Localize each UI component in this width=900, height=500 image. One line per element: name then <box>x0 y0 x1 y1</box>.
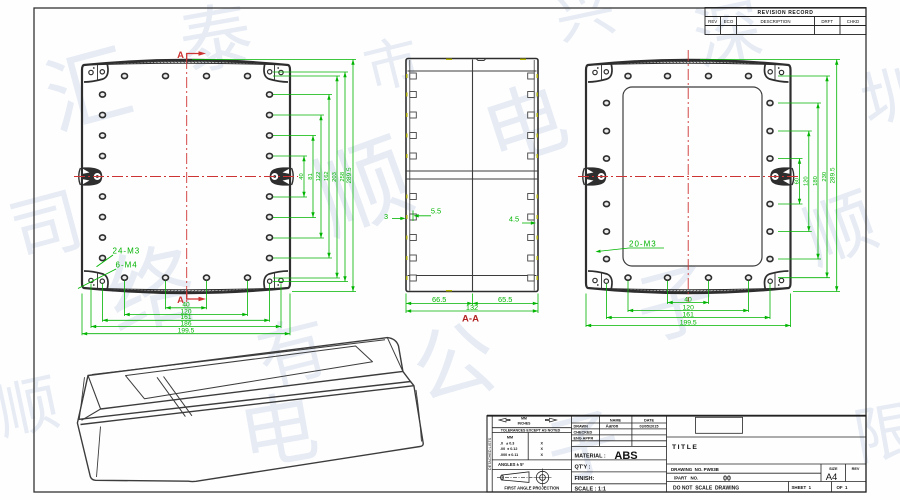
svg-text:60: 60 <box>794 178 800 184</box>
svg-text:.0 ± 0.3: .0 ± 0.3 <box>500 441 514 445</box>
svg-text:MM: MM <box>521 417 527 421</box>
svg-text:20-M3: 20-M3 <box>629 240 657 249</box>
svg-text:TITLE: TITLE <box>672 444 698 451</box>
svg-text:122: 122 <box>316 172 322 182</box>
svg-text:CHECKED: CHECKED <box>574 430 593 434</box>
svg-text:SIZE: SIZE <box>829 467 838 471</box>
svg-text:SHEET 1: SHEET 1 <box>792 485 812 490</box>
svg-text:REV: REV <box>852 467 860 471</box>
svg-text:TOLERANCES EXCEPT AS NOTED: TOLERANCES EXCEPT AS NOTED <box>501 428 561 432</box>
svg-text:OF 1: OF 1 <box>837 485 849 490</box>
svg-text:161: 161 <box>683 311 695 318</box>
svg-text:66.5: 66.5 <box>432 295 446 304</box>
svg-text:/PART NO.: /PART NO. <box>674 476 698 481</box>
svg-text:ABS: ABS <box>614 450 637 462</box>
svg-text:6-M4: 6-M4 <box>116 261 138 270</box>
svg-text:SCALE : 1:1: SCALE : 1:1 <box>575 487 606 493</box>
svg-text:Aaron: Aaron <box>606 423 619 428</box>
svg-text:REV: REV <box>708 19 717 24</box>
svg-text:ENG APPR: ENG APPR <box>574 436 594 440</box>
svg-text:4.5: 4.5 <box>509 215 519 224</box>
svg-text:81: 81 <box>308 173 314 179</box>
svg-text:.000 ± 0.11: .000 ± 0.11 <box>500 453 518 457</box>
svg-text:DRAWING NO. PW03B: DRAWING NO. PW03B <box>671 467 719 472</box>
svg-text:258: 258 <box>340 172 346 182</box>
svg-text:.00 ± 0.12: .00 ± 0.12 <box>500 447 517 451</box>
svg-text:120: 120 <box>683 304 695 311</box>
svg-text:230: 230 <box>822 172 828 182</box>
svg-text:DETACHED LISTS: DETACHED LISTS <box>488 437 492 470</box>
svg-text:289.5: 289.5 <box>830 167 837 183</box>
svg-text:289.5: 289.5 <box>346 167 353 183</box>
svg-text:NAME: NAME <box>610 418 622 422</box>
svg-text:DATE: DATE <box>644 418 655 422</box>
svg-text:DRFT: DRFT <box>821 19 833 24</box>
svg-text:120: 120 <box>804 176 810 186</box>
svg-text:FIRST ANGLE PROJECTION: FIRST ANGLE PROJECTION <box>504 485 559 490</box>
svg-text:00: 00 <box>723 476 731 483</box>
svg-text:MATERIAL :: MATERIAL : <box>575 454 606 460</box>
svg-text:QT'Y :: QT'Y : <box>575 465 591 471</box>
svg-text:DRAWN: DRAWN <box>574 424 589 428</box>
svg-text:65.5: 65.5 <box>498 295 512 304</box>
svg-text:ANGLES ± 5°: ANGLES ± 5° <box>498 462 524 467</box>
svg-text:DO NOT SCALE DRAWING: DO NOT SCALE DRAWING <box>673 485 739 491</box>
svg-text:03/05/2015: 03/05/2015 <box>639 424 658 428</box>
svg-text:3: 3 <box>384 212 388 221</box>
svg-text:203: 203 <box>332 172 338 182</box>
svg-text:MM: MM <box>507 435 513 439</box>
svg-text:DESCRIPTION: DESCRIPTION <box>760 19 790 24</box>
svg-text:180: 180 <box>813 176 819 186</box>
svg-text:ECO: ECO <box>724 19 734 24</box>
svg-text:24-M3: 24-M3 <box>113 247 141 256</box>
svg-text:40: 40 <box>684 296 692 303</box>
svg-text:162: 162 <box>324 171 330 181</box>
svg-text:40: 40 <box>299 173 305 179</box>
svg-text:186: 186 <box>180 320 191 327</box>
svg-text:A: A <box>177 50 184 61</box>
svg-text:INCHES: INCHES <box>518 422 532 426</box>
svg-text:REVISION RECORD: REVISION RECORD <box>758 10 814 16</box>
svg-text:132: 132 <box>466 303 478 312</box>
svg-text:199.5: 199.5 <box>680 319 697 326</box>
svg-text:A4: A4 <box>826 472 838 483</box>
svg-text:FINISH:: FINISH: <box>575 476 595 482</box>
svg-text:CHKD: CHKD <box>847 19 859 24</box>
svg-text:199.5: 199.5 <box>178 328 195 335</box>
svg-text:A-A: A-A <box>462 314 479 325</box>
svg-text:5.5: 5.5 <box>431 207 441 216</box>
